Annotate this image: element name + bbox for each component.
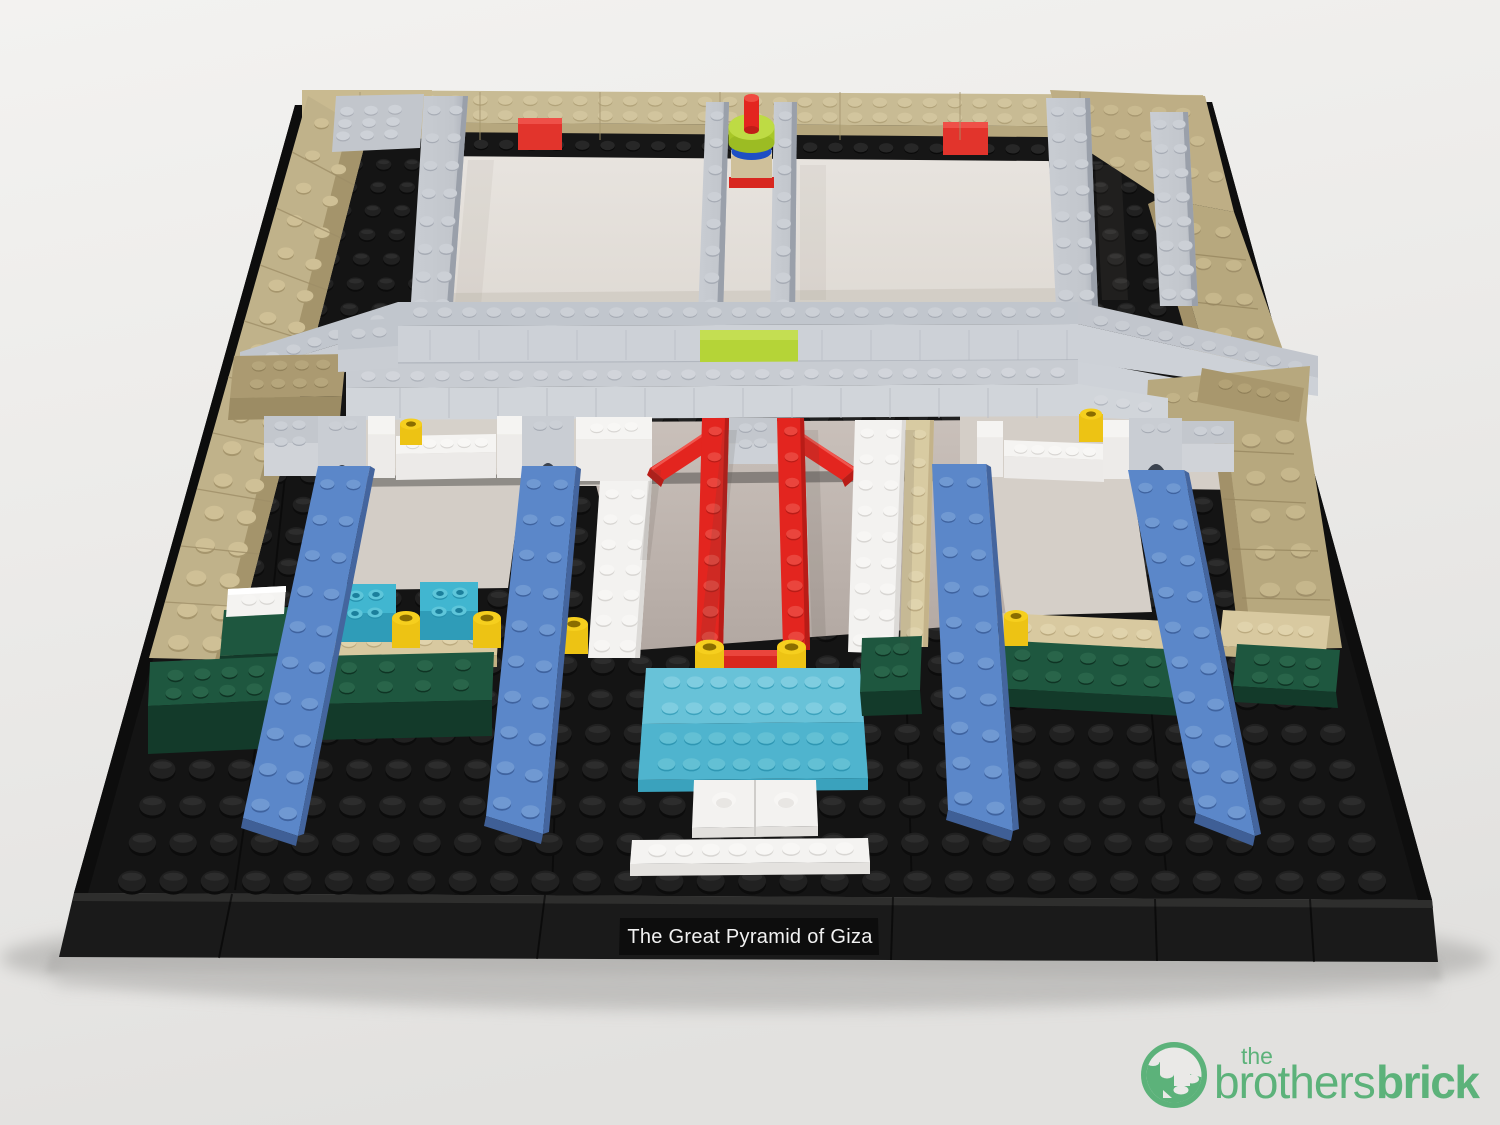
svg-text:brothers: brothers: [1214, 1056, 1375, 1108]
svg-text:brick: brick: [1376, 1056, 1480, 1108]
svg-text:The Great Pyramid of Giza: The Great Pyramid of Giza: [627, 926, 873, 948]
